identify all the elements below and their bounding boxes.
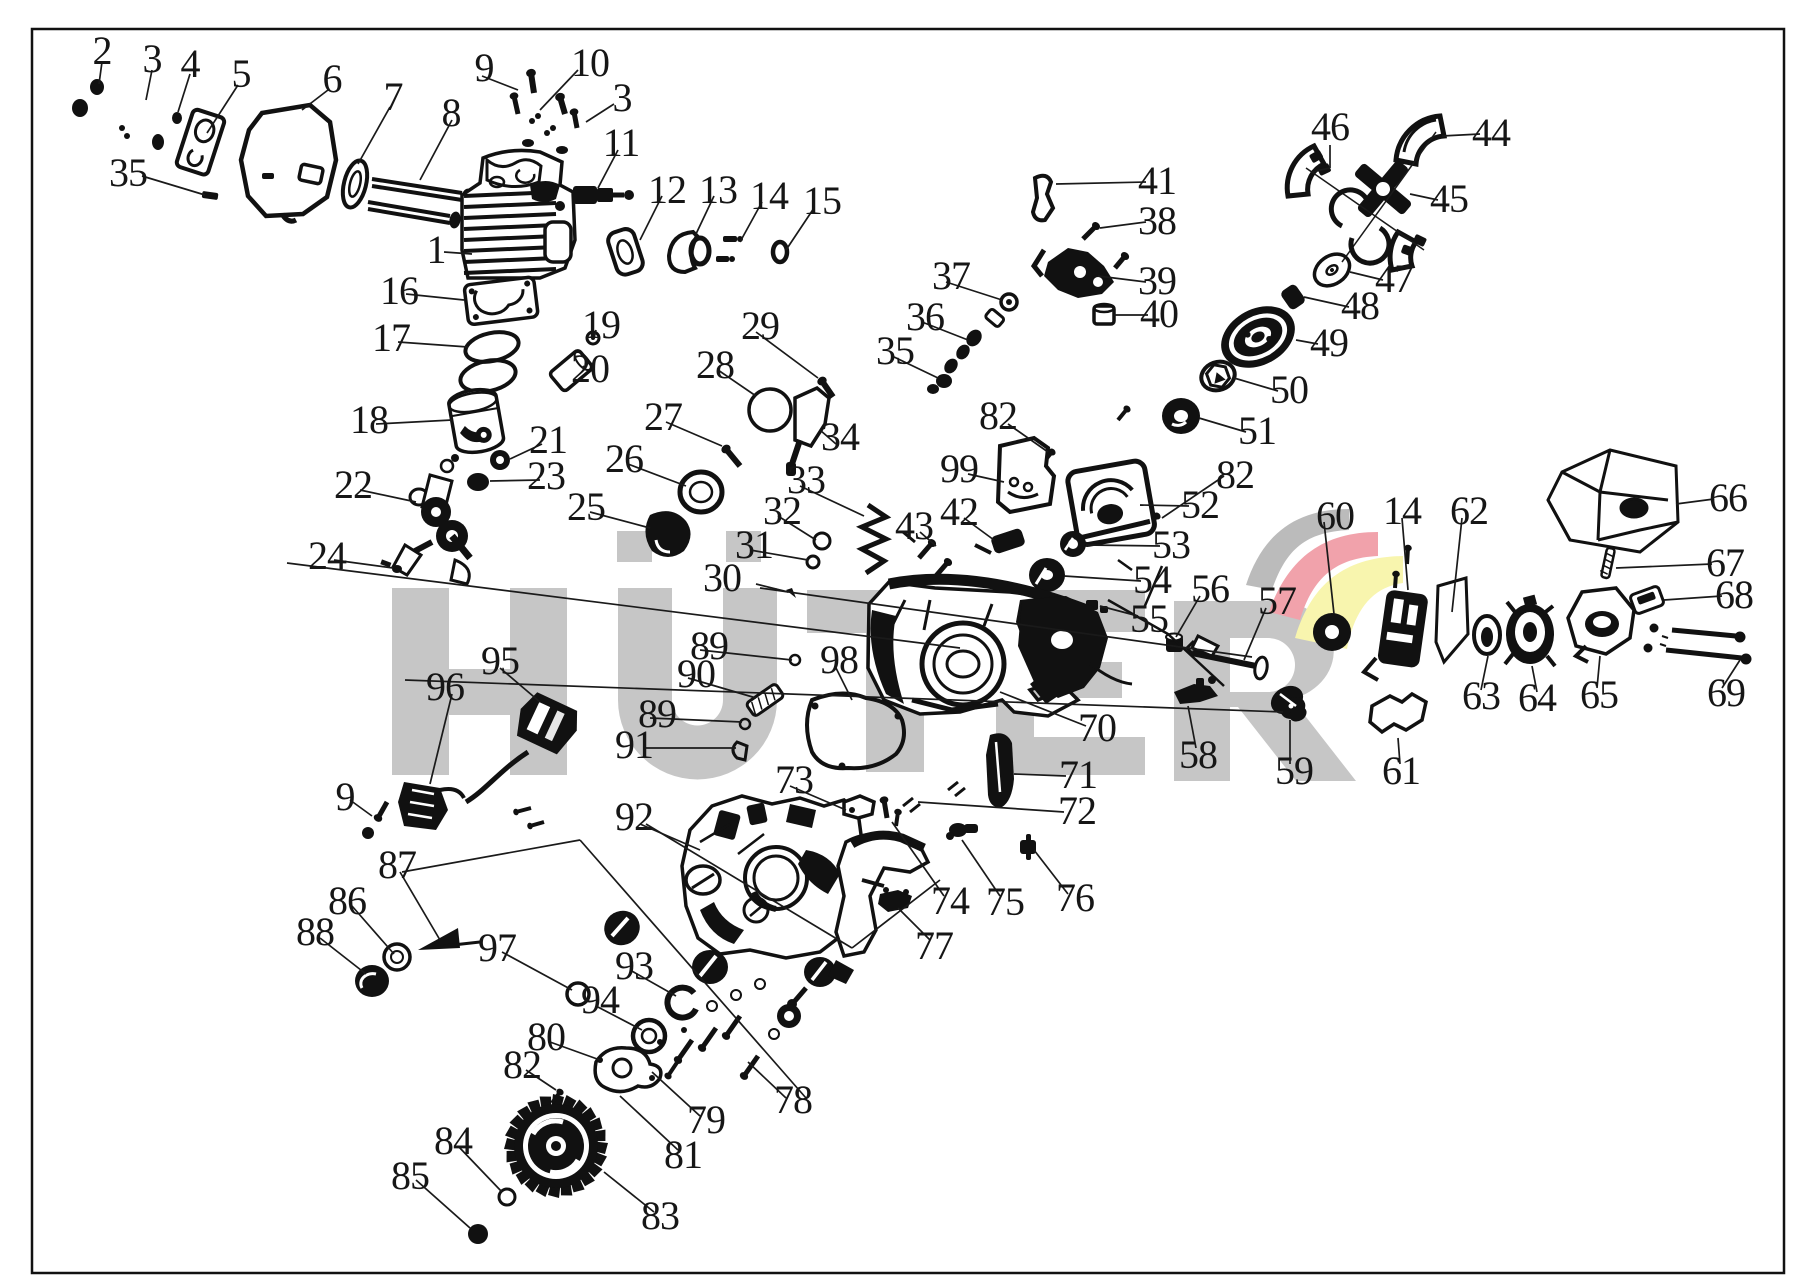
svg-text:78: 78 bbox=[774, 1077, 812, 1122]
svg-text:4: 4 bbox=[181, 41, 201, 86]
svg-text:14: 14 bbox=[1383, 488, 1422, 533]
svg-text:1: 1 bbox=[427, 227, 446, 272]
svg-text:18: 18 bbox=[350, 397, 388, 442]
svg-text:66: 66 bbox=[1709, 475, 1747, 520]
svg-text:16: 16 bbox=[380, 268, 418, 313]
svg-text:91: 91 bbox=[615, 722, 653, 767]
svg-text:14: 14 bbox=[750, 173, 789, 218]
svg-text:72: 72 bbox=[1058, 788, 1096, 833]
svg-text:90: 90 bbox=[677, 651, 715, 696]
svg-text:11: 11 bbox=[603, 120, 640, 165]
svg-text:62: 62 bbox=[1450, 488, 1488, 533]
svg-text:19: 19 bbox=[582, 302, 620, 347]
svg-text:61: 61 bbox=[1382, 748, 1420, 793]
svg-text:42: 42 bbox=[940, 489, 978, 534]
svg-text:6: 6 bbox=[323, 56, 342, 101]
svg-text:29: 29 bbox=[741, 303, 779, 348]
svg-text:69: 69 bbox=[1707, 670, 1745, 715]
svg-text:44: 44 bbox=[1472, 110, 1511, 155]
svg-text:15: 15 bbox=[803, 178, 841, 223]
svg-text:46: 46 bbox=[1311, 104, 1349, 149]
svg-text:28: 28 bbox=[696, 342, 734, 387]
svg-text:43: 43 bbox=[895, 503, 933, 548]
svg-text:87: 87 bbox=[378, 842, 416, 887]
svg-text:45: 45 bbox=[1430, 176, 1468, 221]
svg-text:23: 23 bbox=[527, 453, 565, 498]
svg-text:96: 96 bbox=[426, 664, 464, 709]
svg-text:9: 9 bbox=[336, 774, 355, 819]
svg-text:56: 56 bbox=[1191, 566, 1229, 611]
svg-text:73: 73 bbox=[775, 757, 813, 802]
svg-text:99: 99 bbox=[940, 446, 978, 491]
svg-text:2: 2 bbox=[93, 28, 112, 73]
svg-text:40: 40 bbox=[1140, 291, 1178, 336]
svg-text:76: 76 bbox=[1056, 875, 1094, 920]
svg-text:63: 63 bbox=[1462, 673, 1500, 718]
svg-text:38: 38 bbox=[1138, 198, 1176, 243]
svg-text:64: 64 bbox=[1518, 675, 1557, 720]
svg-text:55: 55 bbox=[1130, 596, 1168, 641]
svg-text:93: 93 bbox=[615, 943, 653, 988]
svg-text:34: 34 bbox=[821, 414, 860, 459]
svg-text:52: 52 bbox=[1181, 482, 1219, 527]
svg-text:68: 68 bbox=[1715, 572, 1753, 617]
svg-text:51: 51 bbox=[1238, 408, 1276, 453]
svg-text:13: 13 bbox=[699, 167, 737, 212]
svg-text:27: 27 bbox=[644, 394, 682, 439]
svg-text:35: 35 bbox=[876, 328, 914, 373]
svg-text:77: 77 bbox=[915, 923, 953, 968]
svg-text:50: 50 bbox=[1270, 367, 1308, 412]
svg-text:9: 9 bbox=[475, 45, 494, 90]
svg-text:81: 81 bbox=[664, 1132, 702, 1177]
svg-text:20: 20 bbox=[571, 346, 609, 391]
svg-text:35: 35 bbox=[109, 150, 147, 195]
svg-text:8: 8 bbox=[442, 90, 461, 135]
svg-text:58: 58 bbox=[1179, 732, 1217, 777]
svg-text:70: 70 bbox=[1078, 705, 1116, 750]
svg-text:98: 98 bbox=[820, 637, 858, 682]
svg-text:82: 82 bbox=[503, 1042, 541, 1087]
svg-text:10: 10 bbox=[571, 40, 609, 85]
svg-text:3: 3 bbox=[143, 36, 162, 81]
svg-text:75: 75 bbox=[986, 879, 1024, 924]
svg-text:22: 22 bbox=[334, 462, 372, 507]
svg-text:92: 92 bbox=[615, 794, 653, 839]
svg-text:37: 37 bbox=[932, 253, 970, 298]
svg-text:12: 12 bbox=[648, 167, 686, 212]
svg-text:30: 30 bbox=[703, 555, 741, 600]
svg-text:47: 47 bbox=[1375, 256, 1413, 301]
svg-text:59: 59 bbox=[1275, 748, 1313, 793]
svg-text:49: 49 bbox=[1310, 320, 1348, 365]
svg-text:25: 25 bbox=[567, 484, 605, 529]
svg-text:57: 57 bbox=[1258, 578, 1296, 623]
svg-text:85: 85 bbox=[391, 1153, 429, 1198]
svg-text:97: 97 bbox=[478, 925, 516, 970]
svg-text:74: 74 bbox=[931, 878, 970, 923]
svg-text:3: 3 bbox=[613, 75, 632, 120]
svg-text:95: 95 bbox=[481, 638, 519, 683]
svg-text:82: 82 bbox=[979, 393, 1017, 438]
svg-text:94: 94 bbox=[581, 977, 620, 1022]
svg-text:84: 84 bbox=[434, 1118, 473, 1163]
svg-text:24: 24 bbox=[308, 533, 347, 578]
svg-text:60: 60 bbox=[1316, 493, 1354, 538]
svg-text:7: 7 bbox=[384, 74, 403, 119]
svg-text:26: 26 bbox=[605, 436, 643, 481]
svg-text:17: 17 bbox=[372, 315, 410, 360]
svg-text:65: 65 bbox=[1580, 672, 1618, 717]
svg-text:83: 83 bbox=[641, 1193, 679, 1238]
svg-text:5: 5 bbox=[232, 51, 251, 96]
svg-text:82: 82 bbox=[1216, 452, 1254, 497]
svg-text:41: 41 bbox=[1138, 158, 1176, 203]
svg-text:88: 88 bbox=[296, 909, 334, 954]
